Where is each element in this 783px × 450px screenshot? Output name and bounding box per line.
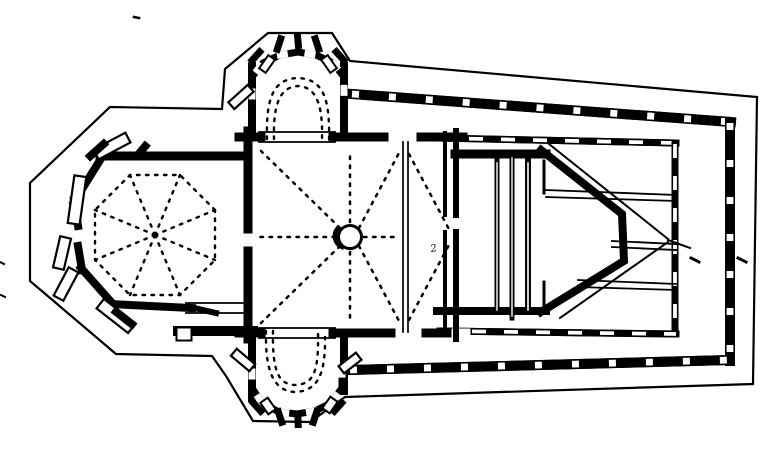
aisle-wall-north bbox=[437, 135, 676, 145]
print-speck-left-1 bbox=[0, 262, 4, 264]
sanctuary-step-3b bbox=[578, 287, 676, 290]
north-apse-buttress-2 bbox=[321, 55, 337, 73]
octagon-rib-6 bbox=[130, 235, 155, 295]
print-speck-top bbox=[134, 17, 139, 18]
bay-number-label: 2 bbox=[429, 243, 438, 255]
apse-roofline-lower bbox=[560, 242, 668, 318]
octagon-rib-8 bbox=[155, 235, 215, 260]
north-apse-vault-inner bbox=[274, 86, 322, 139]
east-precinct-wall bbox=[726, 123, 734, 361]
octagon-rib-7 bbox=[155, 235, 180, 295]
north-apse-stub-4 bbox=[311, 34, 323, 53]
south-apse-stub-3 bbox=[294, 412, 302, 428]
north-precinct-wall bbox=[352, 90, 732, 126]
vault-rib-sw bbox=[261, 246, 340, 323]
octagon-buttress-w1 bbox=[53, 236, 71, 270]
print-speck-left-2 bbox=[1, 295, 5, 297]
south-link-pier bbox=[177, 328, 192, 341]
aisle-wall-south bbox=[440, 328, 676, 336]
octagon-rib-1 bbox=[155, 210, 215, 235]
south-precinct-wall bbox=[350, 356, 730, 374]
north-apse-buttress-1 bbox=[259, 55, 275, 73]
plan-shapes: 2 bbox=[0, 17, 757, 428]
octagon-rib-5 bbox=[95, 235, 155, 260]
vault-rib-se bbox=[359, 246, 399, 321]
south-apse-vault-inner bbox=[273, 331, 318, 385]
octagon-south-wall bbox=[110, 304, 192, 308]
floor-plan-svg: 2 bbox=[0, 0, 783, 450]
octagon-rib-4 bbox=[95, 210, 155, 235]
precinct-tick-2 bbox=[738, 258, 746, 262]
precinct-tick-1 bbox=[691, 258, 699, 262]
aisle-wall-east bbox=[672, 144, 677, 334]
vault-rib-nw bbox=[261, 151, 340, 228]
octagon-buttress-w2 bbox=[54, 267, 79, 300]
octagon-rib-3 bbox=[130, 175, 155, 235]
north-apse-stub-2 bbox=[273, 34, 285, 53]
octagon-rib-2 bbox=[155, 175, 180, 235]
north-apse-stub-3 bbox=[294, 33, 302, 50]
vault-rib-ne bbox=[359, 153, 399, 228]
octagon-buttress-nw bbox=[68, 175, 87, 224]
floor-plan-page: 2 bbox=[0, 0, 783, 450]
